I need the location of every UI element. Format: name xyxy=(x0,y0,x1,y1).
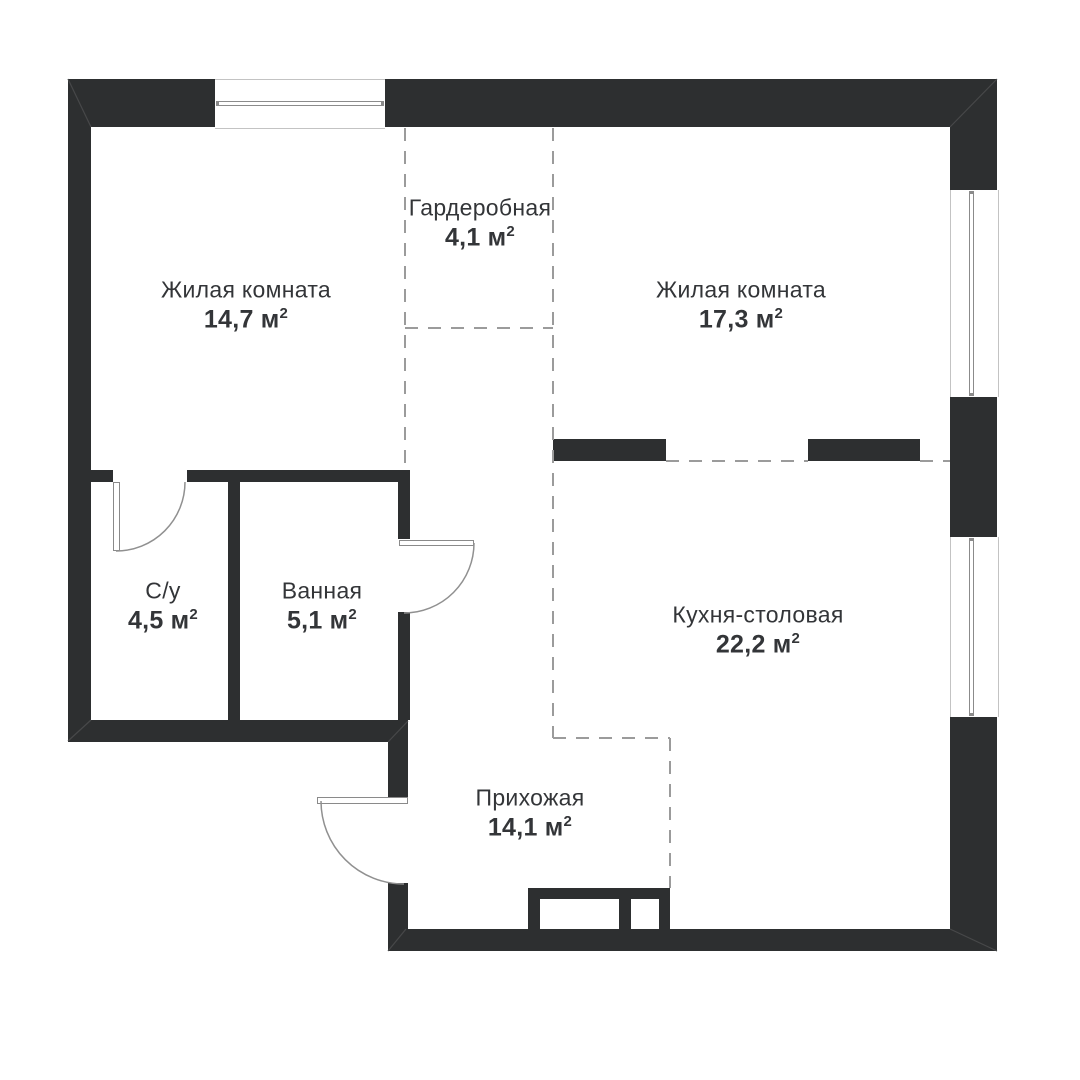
dashed-wardrobe-bottom xyxy=(405,327,553,329)
wall-bath-east-lower xyxy=(398,612,410,720)
room-area: 4,1м2 xyxy=(409,223,551,254)
vent-shaft-opening-2 xyxy=(631,899,659,929)
room-area: 14,1м2 xyxy=(476,813,585,844)
dashed-kitchen-top-right xyxy=(920,460,950,462)
dashed-kitchen-left xyxy=(552,128,554,738)
window-glazing xyxy=(969,538,974,716)
wall-bath-bottom xyxy=(68,720,408,742)
room-label-living-1: Жилая комната 14,7м2 xyxy=(161,275,331,336)
door-arc-wc xyxy=(116,482,185,551)
room-area: 17,3м2 xyxy=(656,305,826,336)
room-label-living-2: Жилая комната 17,3м2 xyxy=(656,275,826,336)
door-leaf-entrance xyxy=(317,797,408,804)
room-label-kitchen: Кухня-столовая 22,2м2 xyxy=(672,600,843,661)
room-label-bathroom: Ванная 5,1м2 xyxy=(282,576,363,637)
dashed-kitchen-top-mid xyxy=(666,460,808,462)
room-area: 5,1м2 xyxy=(282,606,363,637)
room-name: Гардеробная xyxy=(409,193,551,223)
wall-bath-top-stub xyxy=(91,470,113,482)
wall-bath-top-main xyxy=(187,470,410,482)
door-arc-entrance xyxy=(321,801,404,884)
room-name: Жилая комната xyxy=(161,275,331,305)
wall-left xyxy=(68,127,91,741)
wall-su-bath-divider xyxy=(228,482,240,720)
wall-right-upper xyxy=(950,127,997,190)
room-name: Жилая комната xyxy=(656,275,826,305)
dashed-hall-kitchen-v xyxy=(669,738,671,888)
room-name: С/у xyxy=(128,576,198,606)
room-area: 22,2м2 xyxy=(672,630,843,661)
wall-hall-west-upper xyxy=(388,742,408,797)
room-label-hallway: Прихожая 14,1м2 xyxy=(476,783,585,844)
window-top xyxy=(215,79,385,129)
room-label-wardrobe: Гардеробная 4,1м2 xyxy=(409,193,551,254)
room-name: Ванная xyxy=(282,576,363,606)
room-label-wc: С/у 4,5м2 xyxy=(128,576,198,637)
window-glazing xyxy=(969,191,974,396)
window-right-lower xyxy=(950,537,999,717)
dashed-wardrobe-left xyxy=(404,128,406,470)
door-leaf-bath xyxy=(399,540,474,546)
wall-kitchen-partial-right xyxy=(808,439,920,461)
window-right-upper xyxy=(950,190,999,397)
door-arc-bath xyxy=(404,543,474,613)
wall-kitchen-partial-left xyxy=(553,439,666,461)
wall-top-right xyxy=(385,79,997,127)
window-glazing xyxy=(216,101,384,106)
room-name: Кухня-столовая xyxy=(672,600,843,630)
wall-right-middle xyxy=(950,397,997,537)
room-area: 4,5м2 xyxy=(128,606,198,637)
wall-right-lower xyxy=(950,717,997,951)
wall-bath-east-upper xyxy=(398,482,410,539)
room-name: Прихожая xyxy=(476,783,585,813)
door-leaf-wc xyxy=(113,482,120,551)
floor-plan-canvas: Жилая комната 14,7м2 Гардеробная 4,1м2 Ж… xyxy=(0,0,1080,1080)
wall-top-left xyxy=(68,79,215,127)
room-area: 14,7м2 xyxy=(161,305,331,336)
wall-bottom xyxy=(388,929,997,951)
dashed-hall-kitchen-h xyxy=(553,737,670,739)
vent-shaft-opening-1 xyxy=(540,899,619,929)
